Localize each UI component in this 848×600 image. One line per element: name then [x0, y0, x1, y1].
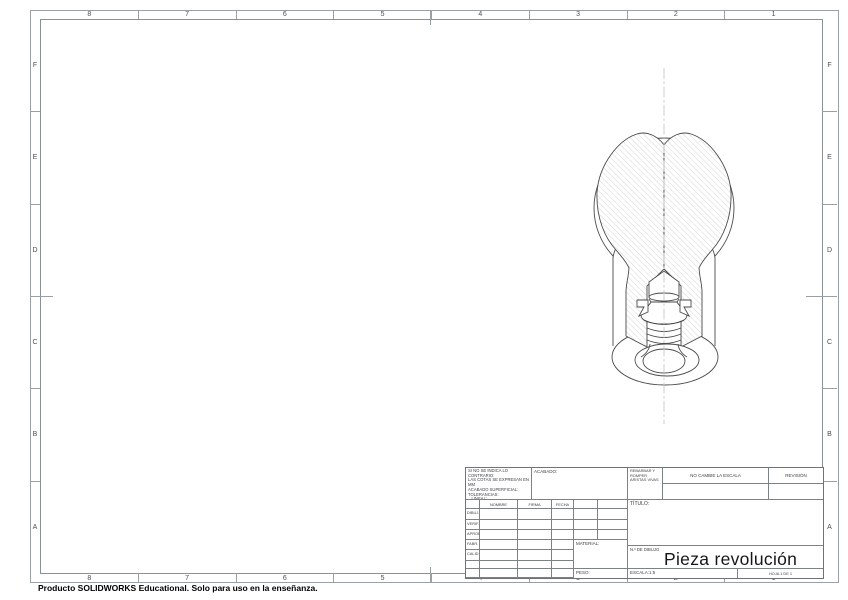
drawing-view-section: [555, 55, 775, 435]
signature-cell: [518, 550, 552, 561]
zone-label: A: [30, 482, 40, 573]
zone-label: F: [822, 20, 837, 112]
signature-cell: [598, 509, 628, 520]
material-cell: MATERIAL:: [574, 540, 628, 569]
finish-cell: ACABADO:: [532, 468, 628, 500]
zone-label: F: [30, 20, 40, 112]
signature-cell: [480, 530, 518, 540]
revision-label: REVISIÓN: [785, 473, 807, 478]
scale-cell: ESCALA:1:5: [628, 569, 738, 578]
signature-cell: FECHA: [552, 500, 574, 509]
signature-cell: [480, 561, 518, 569]
signature-cell: [574, 520, 598, 530]
zone-label: 7: [139, 573, 237, 582]
signature-cell: [552, 569, 574, 578]
zone-label: D: [30, 205, 40, 297]
part-geometry: [594, 68, 734, 424]
scale-value: ESCALA:1:5: [630, 570, 655, 575]
zone-label: 8: [41, 573, 139, 582]
zone-label: 4: [432, 10, 530, 19]
titulo-label: TÍTULO:: [630, 501, 649, 507]
material-label: MATERIAL:: [576, 541, 599, 546]
zone-label: 3: [530, 10, 628, 19]
signature-cell: [552, 561, 574, 569]
zone-label: D: [822, 205, 837, 297]
titulo-cell: TÍTULO:: [628, 500, 823, 546]
signature-cell: [518, 561, 552, 569]
center-mark-right: [806, 296, 837, 297]
solidworks-drawing-sheet: { "sheet": { "zones_top": ["8","7","6","…: [0, 0, 848, 600]
signature-cell: [480, 569, 518, 578]
signature-cell: [552, 550, 574, 561]
zone-label: C: [30, 297, 40, 389]
signature-cell: [466, 561, 480, 569]
signature-cell: [466, 500, 480, 509]
finish-label: ACABADO:: [534, 469, 557, 474]
tolerance-note-cell: SI NO SE INDICA LO CONTRARIO:LAS COTAS S…: [466, 468, 532, 500]
signature-cell: [518, 509, 552, 520]
signature-cell: [518, 520, 552, 530]
signature-cell: [552, 530, 574, 540]
sheet-value: HOJA 1 DE 1: [769, 571, 792, 576]
signature-cell: [480, 550, 518, 561]
signature-cell: DIBUJ.: [466, 509, 480, 520]
signature-cell: [518, 569, 552, 578]
signature-cell: [518, 530, 552, 540]
signature-cell: [552, 520, 574, 530]
drawing-no-label: N.º DE DIBUJO: [628, 546, 661, 553]
educational-footer-note: Producto SOLIDWORKS Educational. Solo pa…: [38, 583, 318, 593]
deburr-note: REBARBAR Y ROMPER ARISTAS VIVAS: [630, 468, 659, 482]
sheet-count-cell: HOJA 1 DE 1: [738, 569, 823, 578]
revision-empty-cell: [769, 484, 823, 500]
zone-label: B: [822, 389, 837, 481]
center-mark-left: [30, 296, 53, 297]
zone-label: E: [822, 112, 837, 204]
zone-label: C: [822, 297, 837, 389]
zone-label: 6: [237, 573, 335, 582]
scale-warning: NO CAMBIE LA ESCALA: [690, 473, 741, 478]
revision-cell: REVISIÓN: [769, 468, 823, 484]
signature-cell: CALID.: [466, 550, 480, 561]
center-mark-top: [430, 10, 431, 25]
zone-strip-top: 87654321: [41, 10, 822, 19]
center-mark-bottom: [430, 567, 431, 582]
zone-label: 5: [334, 10, 432, 19]
zone-label: 6: [237, 10, 335, 19]
signature-cell: [574, 530, 598, 540]
weight-label: PESO:: [576, 570, 590, 575]
deburr-cell: REBARBAR Y ROMPER ARISTAS VIVAS: [628, 468, 663, 500]
zone-label: 2: [628, 10, 726, 19]
signature-cell: NOMBRE: [480, 500, 518, 509]
signature-cell: [480, 540, 518, 550]
title-block: SI NO SE INDICA LO CONTRARIO:LAS COTAS S…: [465, 467, 824, 579]
signature-cell: [574, 509, 598, 520]
zone-label: A: [822, 482, 837, 573]
zone-label: 1: [725, 10, 822, 19]
signature-cell: [598, 520, 628, 530]
signature-cell: [480, 520, 518, 530]
zone-label: B: [30, 389, 40, 481]
zone-label: E: [30, 112, 40, 204]
scale-warning-empty-cell: [663, 484, 769, 500]
signature-cell: FABR.: [466, 540, 480, 550]
weight-cell: PESO:: [574, 569, 628, 578]
signature-cell: [574, 500, 598, 509]
scale-warning-cell: NO CAMBIE LA ESCALA: [663, 468, 769, 484]
signature-cell: [598, 500, 628, 509]
drawing-number-cell: N.º DE DIBUJO Pieza revolución A3: [628, 546, 823, 569]
signature-cell: [598, 530, 628, 540]
zone-label: 5: [334, 573, 432, 582]
signature-cell: [466, 569, 480, 578]
zone-label: 7: [139, 10, 237, 19]
zone-label: 8: [41, 10, 139, 19]
signature-cell: [480, 509, 518, 520]
signature-cell: [552, 509, 574, 520]
signature-cell: APROB.: [466, 530, 480, 540]
signature-cell: VERIF.: [466, 520, 480, 530]
signature-cell: [552, 540, 574, 550]
drawing-title: Pieza revolución: [664, 551, 799, 568]
signature-cell: [518, 540, 552, 550]
signature-cell: FIRMA: [518, 500, 552, 509]
tolerance-note-text: SI NO SE INDICA LO CONTRARIO:LAS COTAS S…: [468, 469, 529, 500]
